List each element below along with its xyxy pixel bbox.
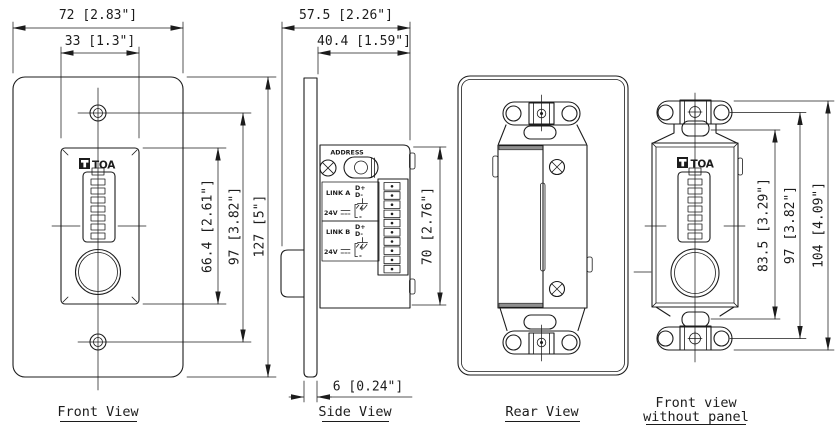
rear-top-slot xyxy=(524,126,556,139)
dim-front-width-inner: 33 [1.3"] xyxy=(65,34,135,49)
power-a-label: 24V xyxy=(324,210,338,217)
rear-top-strip xyxy=(499,146,543,150)
mount-hole-icon xyxy=(714,105,729,120)
bracket-a xyxy=(355,205,358,218)
mount-hole-icon xyxy=(562,335,577,350)
np-top-bracket xyxy=(657,100,732,124)
technical-drawing: TOA 72 [2.83"] 33 [1.3"] xyxy=(0,0,839,435)
rear-bottom-strip xyxy=(499,303,543,307)
mount-hole-icon xyxy=(658,331,673,346)
side-view: ADDRESS LINK A D+ D- 24V + - LINK B D+ D… xyxy=(281,8,446,422)
link-b-d-minus: D- xyxy=(355,231,363,238)
np-centerlines xyxy=(634,93,745,362)
terminal-block xyxy=(378,179,408,275)
rear-bottom-slot xyxy=(524,315,556,329)
front-view: TOA 72 [2.83"] 33 [1.3"] xyxy=(13,8,276,422)
side-wall-plate xyxy=(304,78,317,377)
dim-side-depth-body: 40.4 [1.59"] xyxy=(317,34,411,49)
np-bottom-slot xyxy=(682,312,709,327)
address-label: ADDRESS xyxy=(330,150,364,157)
rear-view-label: Rear View xyxy=(505,404,579,420)
dim-front-overall-height: 127 [5"] xyxy=(253,195,268,258)
rear-right-tab xyxy=(587,257,592,272)
phillips-screw-icon xyxy=(688,105,702,119)
side-knob-profile xyxy=(281,250,304,297)
rear-top-connectors xyxy=(499,125,587,144)
link-a-label: LINK A xyxy=(326,189,350,197)
dim-front-screw-spacing: 97 [3.82"] xyxy=(228,187,243,265)
mount-hole-icon xyxy=(658,105,673,120)
toa-logo-text: TOA xyxy=(691,159,715,171)
toa-logo: TOA xyxy=(79,158,116,172)
link-a-d-minus: D- xyxy=(355,192,363,199)
front-dimensions: 72 [2.83"] 33 [1.3"] 66.4 [2.61"] 97 [3.… xyxy=(13,8,276,377)
power-a-minus: - xyxy=(359,213,362,221)
np-bottom-bracket xyxy=(657,326,732,350)
mount-hole-icon xyxy=(714,331,729,346)
dim-side-body-height: 70 [2.76"] xyxy=(421,187,436,265)
link-a-d-plus: D+ xyxy=(355,185,366,192)
link-b-d-plus: D+ xyxy=(355,224,366,231)
power-b-label: 24V xyxy=(324,249,338,256)
drawing-svg: TOA 72 [2.83"] 33 [1.3"] xyxy=(0,0,839,435)
cross-screw-icon xyxy=(550,160,565,175)
rear-left-tab xyxy=(493,156,498,177)
dim-np-body-height: 83.5 [3.29"] xyxy=(757,178,772,272)
dc-symbol-icon xyxy=(341,211,350,215)
np-dimensions: 83.5 [3.29"] 97 [3.82"] 104 [4.09"] xyxy=(711,101,834,350)
side-view-label: Side View xyxy=(318,404,392,420)
phillips-screw-icon xyxy=(688,332,702,346)
np-right-tab xyxy=(738,158,743,175)
front-view-label: Front View xyxy=(57,404,139,420)
power-b-plus: + xyxy=(359,244,365,252)
rear-bottom-connectors xyxy=(500,308,585,331)
np-view-label-line2: without panel xyxy=(643,409,749,425)
power-a-plus: + xyxy=(359,205,365,213)
dim-front-width-outer: 72 [2.83"] xyxy=(59,8,137,23)
mount-hole-icon xyxy=(506,106,521,121)
address-rotary-switch xyxy=(344,157,378,178)
dim-side-depth-overall: 57.5 [2.26"] xyxy=(299,8,393,23)
cross-screw-icon xyxy=(320,160,336,176)
toa-logo: TOA xyxy=(677,157,715,171)
power-b-minus: - xyxy=(359,252,362,260)
dim-np-overall-height: 104 [4.09"] xyxy=(812,182,827,268)
cross-screw-icon xyxy=(550,282,565,297)
link-b-label: LINK B xyxy=(326,228,350,236)
dim-side-panel-thickness: 6 [0.24"] xyxy=(333,380,403,395)
dip-switch xyxy=(83,168,115,242)
front-without-panel-view: TOA xyxy=(634,93,834,425)
dim-front-insert-height: 66.4 [2.61"] xyxy=(201,179,216,273)
rear-view: Rear View xyxy=(458,76,628,422)
dc-symbol-icon xyxy=(341,250,350,254)
dim-np-screw-spacing: 97 [3.82"] xyxy=(783,186,798,264)
mount-hole-icon xyxy=(506,335,521,350)
bracket-b xyxy=(355,244,358,257)
dip-switch xyxy=(678,168,710,242)
np-top-slot xyxy=(682,121,709,136)
mount-hole-icon xyxy=(562,106,577,121)
